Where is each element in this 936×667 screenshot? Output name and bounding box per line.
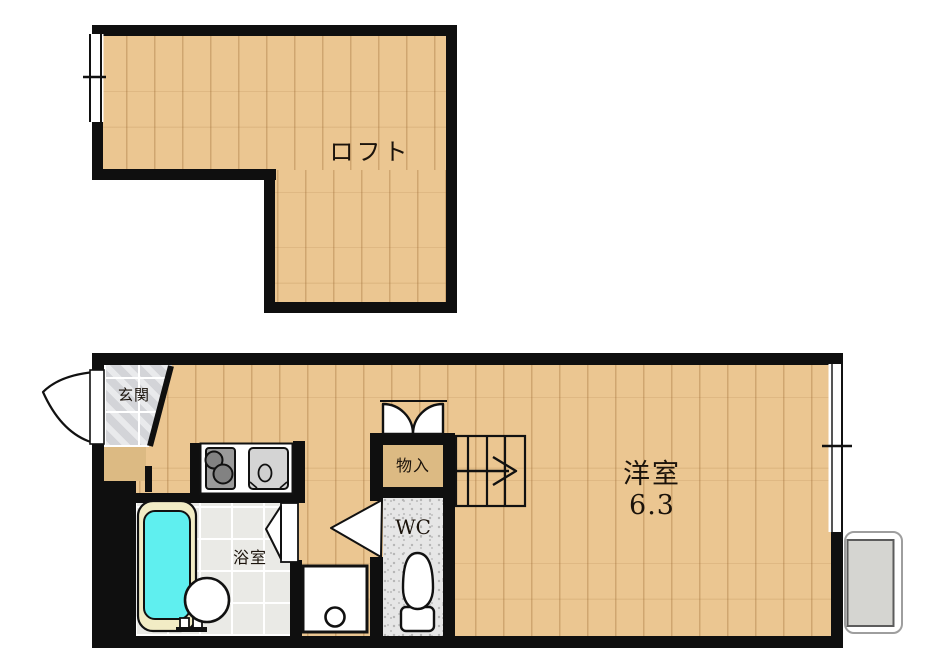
room-label: 洋室	[592, 459, 712, 490]
entrance-door-swing	[43, 372, 95, 443]
wall-kitchen-left	[190, 443, 200, 500]
entrance-label: 玄関	[103, 387, 165, 404]
wall-wc-left-lower	[370, 557, 383, 636]
room-label-block: 洋室 6.3	[592, 459, 712, 521]
wall-wc-right	[443, 433, 455, 636]
loft-wall-notch-vertical	[264, 169, 275, 313]
main-wall-top	[92, 353, 843, 365]
bathroom-floor	[135, 503, 296, 636]
wall-step-stub	[145, 466, 152, 492]
wall-laundry-left	[290, 560, 302, 636]
loft-wall-bottom	[265, 302, 457, 313]
wc-label: WC	[384, 516, 442, 539]
loft-label: ロフト	[310, 139, 430, 167]
floor-plan: ロフト 玄関 浴室 WC 物入 洋室 6.3	[0, 0, 936, 667]
loft-wall-top	[92, 25, 457, 36]
wall-bathroom-top	[135, 493, 305, 503]
storage-label: 物入	[382, 457, 444, 475]
main-wall-right	[831, 353, 843, 648]
loft-wall-right	[446, 25, 457, 313]
bathroom-label: 浴室	[219, 549, 281, 567]
room-size-label: 6.3	[592, 490, 712, 521]
loft-wall-notch-horizontal	[92, 169, 276, 180]
loft-floor-lower	[270, 170, 451, 308]
main-wall-bottom	[92, 636, 843, 648]
entrance-step	[104, 447, 146, 481]
loft-wall-left	[92, 25, 103, 180]
wall-under-entrance	[92, 481, 136, 641]
outdoor-equipment-pad	[845, 532, 902, 633]
